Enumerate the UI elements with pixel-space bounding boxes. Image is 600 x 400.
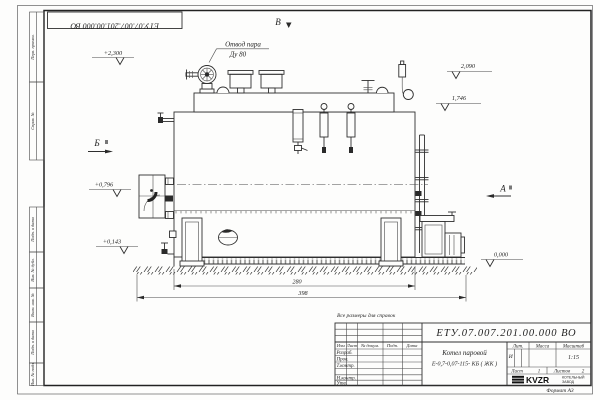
logo-text: KVZR [526, 375, 549, 385]
svg-text:В: В [275, 17, 281, 27]
view-marker-top: В [275, 17, 291, 28]
boiler-general-view-drawing: ЕТУ.07.007.201.00.000 ВО Перв. примен. С… [0, 0, 600, 400]
ground-hatch [133, 267, 477, 275]
rear-blower-unit [420, 212, 465, 257]
svg-text:Б: Б [93, 138, 100, 148]
logo-caption-2: ЗАВОД [562, 380, 575, 384]
support-skid-front [180, 218, 204, 266]
elevation-2300: +2,300 [104, 50, 123, 57]
row-prov: Пров. [336, 358, 349, 363]
sheet-label: Лист [510, 370, 523, 375]
row-utv: Утв. [337, 382, 347, 387]
elevation-0143: +0,143 [103, 239, 121, 246]
stamp-inv-podl: Инв. № подл. [30, 362, 35, 387]
mass-header: Масса [535, 345, 550, 350]
col-izm: Изм [336, 343, 345, 348]
sheet-number: 1 [538, 370, 541, 375]
elevation-0000: 0,000 [494, 252, 509, 259]
elevation-2090: 2,090 [461, 63, 476, 70]
steam-valve [186, 66, 216, 94]
col-list: Лист [346, 343, 358, 348]
kvzr-logo: KVZR КОТЕЛЬНЫЙ ЗАВОД [512, 375, 585, 385]
col-data: Дата [406, 343, 419, 348]
scale-value: 1:15 [568, 355, 579, 361]
base-frame [197, 258, 465, 265]
sheets-label: Листов [553, 370, 571, 375]
dim-280: 280 [292, 279, 302, 286]
stamp-sprav-no: Справ. № [30, 112, 35, 129]
manhole [219, 229, 238, 245]
support-skid-rear [379, 218, 403, 266]
front-box [139, 175, 165, 218]
lit-header: Лит. [512, 345, 524, 350]
product-model: Е-0,7-0,07-115- КБ ( ЖК ) [431, 361, 497, 368]
elevation-0796: +0,796 [95, 182, 114, 189]
row-t-kontr: Т.контр. [337, 364, 355, 369]
reference-note: Все размеры для справок [337, 312, 396, 319]
callout-otvod-para: Отвод пара [225, 41, 261, 49]
svg-text:А: А [499, 184, 506, 194]
scale-header: Масштаб [562, 345, 585, 350]
stamp-podp-data-1: Подп. и дата [30, 217, 35, 243]
lit-value: И [508, 354, 514, 360]
product-title: Котел паровой [441, 349, 487, 357]
stamp-podp-data-2: Подп. и дата [30, 330, 35, 356]
callout-du-80: Ду 80 [229, 51, 247, 59]
format-label: Формат А3 [546, 388, 574, 394]
stamp-vzam-inv: Взам. инв. № [30, 293, 35, 317]
margin-stamps: Перв. примен. Справ. № Подп. и дата Инв.… [30, 12, 45, 387]
stamp-inv-dubl: Инв. № дубл. [30, 258, 35, 282]
view-marker-left: Б [88, 138, 113, 153]
row-razrab: Разраб. [336, 351, 353, 356]
logo-caption-1: КОТЕЛЬНЫЙ [562, 376, 585, 380]
dim-398: 398 [297, 290, 308, 297]
doc-number-top: ЕТУ.07.007.201.00.000 ВО [70, 22, 160, 31]
stamp-perv-primen: Перв. примен. [30, 34, 35, 60]
view-marker-right: А [486, 184, 512, 198]
steam-outlet-callout: Отвод пара Ду 80 [209, 41, 269, 63]
col-doc: № докум. [360, 343, 379, 348]
title-block: Все размеры для справок ЕТУ.07.007.201.0… [335, 312, 591, 394]
elevation-1746: 1,746 [452, 95, 467, 102]
doc-number-main: ЕТУ.07.007.201.00.000 ВО [435, 328, 576, 339]
col-podp: Подп. [386, 343, 398, 348]
drawing-sheet: ЕТУ.07.007.201.00.000 ВО Перв. примен. С… [0, 0, 600, 400]
